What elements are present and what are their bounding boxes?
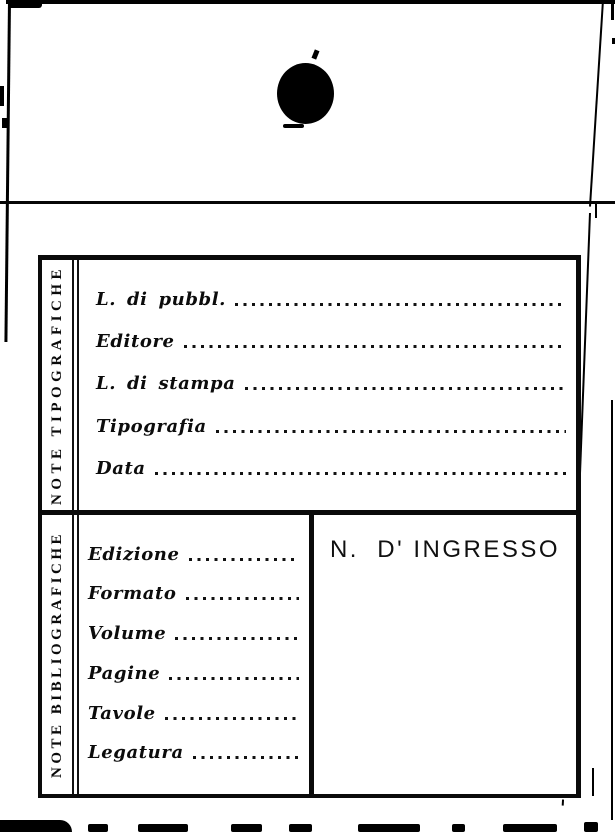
scan-speck bbox=[0, 86, 4, 106]
dotted-entry-line bbox=[193, 756, 299, 759]
side-strip-tipografiche: NOTE TIPOGRAFICHE bbox=[42, 260, 79, 510]
scan-top-edge bbox=[6, 0, 615, 4]
tipografiche-fields: L. di pubbl. Editore L. di stampa Tipogr… bbox=[79, 260, 576, 510]
dotted-entry-line bbox=[245, 387, 567, 390]
scan-left-edge bbox=[4, 0, 11, 342]
scan-speck bbox=[2, 118, 7, 128]
dotted-entry-line bbox=[169, 677, 299, 680]
scan-smudge bbox=[358, 824, 420, 832]
scan-top-edge-blob bbox=[8, 0, 42, 8]
field-label: Volume bbox=[88, 623, 166, 644]
scan-smudge bbox=[289, 824, 312, 832]
scan-bottom-corner bbox=[0, 820, 72, 832]
field-label: Tipografia bbox=[96, 416, 207, 437]
field-row: Tipografia bbox=[96, 416, 566, 437]
section-side-label: NOTE BIBLIOGRAFICHE bbox=[49, 531, 66, 778]
field-label: Editore bbox=[96, 331, 175, 352]
catalog-card-table: NOTE TIPOGRAFICHE L. di pubbl. Editore L… bbox=[38, 255, 581, 798]
dotted-entry-line bbox=[155, 472, 566, 475]
ingresso-header: N. D' INGRESSO bbox=[330, 536, 560, 563]
section-note-tipografiche: NOTE TIPOGRAFICHE L. di pubbl. Editore L… bbox=[42, 260, 576, 510]
dotted-entry-line bbox=[175, 637, 299, 640]
scan-speck bbox=[311, 49, 319, 59]
dotted-entry-line bbox=[186, 597, 299, 600]
ingresso-cell: N. D' INGRESSO bbox=[314, 515, 576, 794]
field-label: Formato bbox=[88, 583, 177, 604]
scan-smudge bbox=[584, 822, 598, 832]
dotted-entry-line bbox=[216, 430, 566, 433]
field-row: Pagine bbox=[88, 663, 299, 684]
field-row: Tavole bbox=[88, 703, 299, 724]
scan-speck bbox=[595, 204, 597, 218]
field-label: Data bbox=[96, 458, 146, 479]
field-label: Edizione bbox=[88, 544, 180, 565]
field-label: L. di stampa bbox=[96, 373, 236, 394]
scan-speck bbox=[283, 124, 304, 128]
field-label: Legatura bbox=[88, 742, 184, 763]
field-label: L. di pubbl. bbox=[96, 289, 226, 310]
scan-right-edge-bottom bbox=[611, 400, 613, 820]
scan-smudge bbox=[452, 824, 465, 832]
field-row: Editore bbox=[96, 331, 566, 352]
section-note-bibliografiche: NOTE BIBLIOGRAFICHE Edizione Formato Vol… bbox=[42, 510, 576, 794]
field-row: Volume bbox=[88, 623, 299, 644]
horizontal-rule bbox=[0, 201, 615, 204]
dotted-entry-line bbox=[189, 558, 299, 561]
scan-smudge bbox=[503, 824, 557, 832]
field-row: Legatura bbox=[88, 742, 299, 763]
card-edge-slant-top bbox=[589, 0, 604, 207]
field-row: L. di stampa bbox=[96, 373, 566, 394]
scan-speck bbox=[592, 768, 594, 796]
dotted-entry-line bbox=[165, 717, 299, 720]
scan-right-edge-top bbox=[611, 0, 614, 20]
scan-smudge bbox=[88, 824, 108, 832]
field-row: Data bbox=[96, 458, 566, 479]
field-label: Tavole bbox=[88, 703, 156, 724]
hole-punch bbox=[277, 63, 334, 124]
field-row: L. di pubbl. bbox=[96, 289, 566, 310]
dotted-entry-line bbox=[235, 303, 566, 306]
scan-smudge bbox=[138, 824, 188, 832]
section-side-label: NOTE TIPOGRAFICHE bbox=[49, 265, 66, 505]
side-strip-bibliografiche: NOTE BIBLIOGRAFICHE bbox=[42, 515, 79, 794]
field-row: Formato bbox=[88, 583, 299, 604]
dotted-entry-line bbox=[184, 345, 566, 348]
field-row: Edizione bbox=[88, 544, 299, 565]
scan-smudge bbox=[231, 824, 262, 832]
field-label: Pagine bbox=[88, 663, 160, 684]
bibliografiche-fields: Edizione Formato Volume Pagine Tavole Le… bbox=[79, 515, 314, 794]
